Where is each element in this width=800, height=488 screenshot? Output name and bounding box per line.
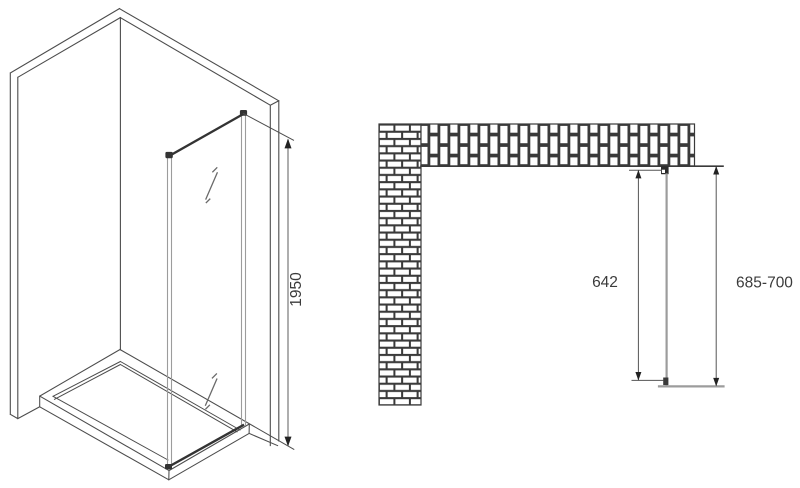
svg-text:685-700: 685-700 bbox=[736, 274, 793, 291]
svg-text:642: 642 bbox=[592, 274, 618, 291]
svg-text:1950: 1950 bbox=[288, 272, 305, 307]
